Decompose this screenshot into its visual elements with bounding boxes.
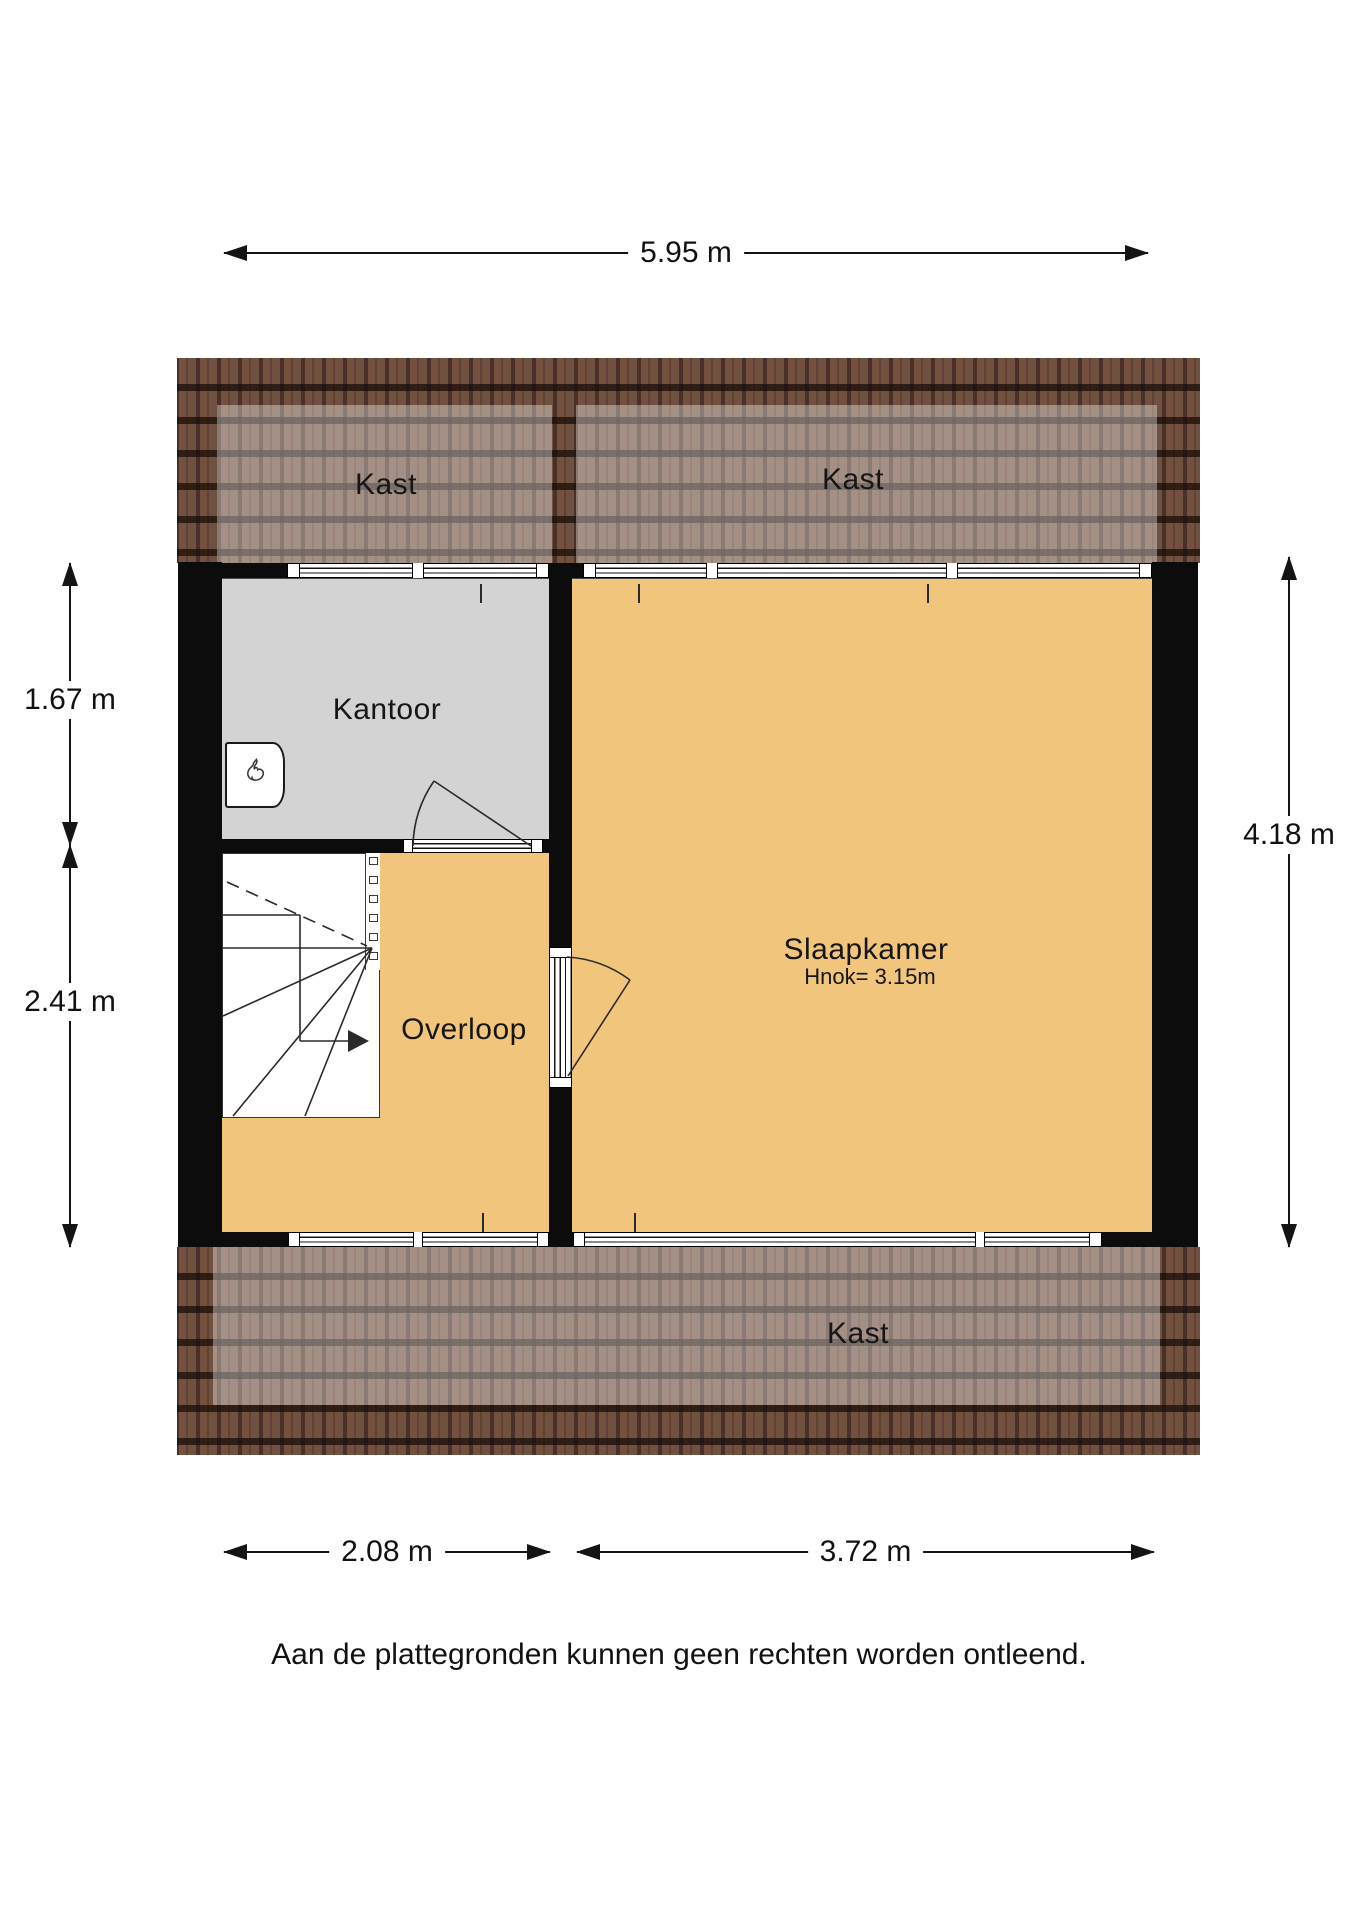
radiator (225, 742, 285, 808)
arrow-right-icon (1125, 245, 1149, 261)
wall-segment (178, 1232, 288, 1247)
dimension-label: 3.72 m (808, 1533, 924, 1571)
wall-segment (549, 1232, 573, 1247)
window-post (583, 563, 596, 578)
stairwell (222, 853, 380, 1118)
door-post (403, 839, 413, 853)
balustrade-spindle (369, 933, 378, 941)
window-divider (412, 563, 424, 578)
room-height-note: Hnok= 3.15m (804, 964, 935, 990)
window-post (536, 563, 549, 578)
window-divider (946, 563, 958, 578)
dimension-overloop-width: 2.08 m (224, 1544, 550, 1560)
door-post (531, 839, 543, 853)
arrow-left-icon (223, 245, 247, 261)
arrow-down-icon (1281, 1224, 1297, 1248)
wall-band-bottom (177, 1232, 1200, 1247)
window-post (288, 1232, 300, 1247)
dimension-label: 1.67 m (12, 681, 128, 719)
window-divider (975, 1232, 985, 1247)
dimension-slaapkamer-width: 3.72 m (577, 1544, 1154, 1560)
wall-segment (549, 563, 583, 578)
room-slaapkamer (572, 578, 1152, 1232)
window (718, 563, 946, 578)
balustrade-spindle (369, 895, 378, 903)
window (300, 563, 412, 578)
window-post (1089, 1232, 1102, 1247)
window (596, 563, 706, 578)
room-label-kast-bottom: Kast (827, 1317, 889, 1351)
room-label-kast-top-left: Kast (355, 468, 417, 502)
kast-area-bottom (213, 1247, 1160, 1405)
arrow-up-icon (62, 562, 78, 586)
dimension-label: 2.08 m (329, 1533, 445, 1571)
window-divider (413, 1232, 423, 1247)
arrow-left-icon (223, 1544, 247, 1560)
arrow-left-icon (576, 1544, 600, 1560)
exterior-wall-left (178, 562, 222, 1247)
balustrade-spindle (369, 857, 378, 865)
room-label-overloop: Overloop (401, 1013, 527, 1047)
wall-segment (178, 563, 287, 578)
exterior-wall-right (1152, 562, 1198, 1247)
stair-balustrade (365, 853, 380, 970)
roof-strip-bottom (177, 1247, 1200, 1455)
window-post (573, 1232, 585, 1247)
arrow-down-icon (62, 1224, 78, 1248)
interior-wall-slaapkamer (549, 578, 572, 947)
flame-icon (238, 756, 272, 794)
room-label-kast-top-right: Kast (822, 463, 884, 497)
wall-segment (1102, 1232, 1198, 1247)
arrow-up-icon (1281, 556, 1297, 580)
floor-plan: Kast Kast Kast Kantoor Slaapkamer Hnok= … (177, 358, 1200, 1455)
room-label-slaapkamer: Slaapkamer (783, 933, 948, 967)
dimension-line (69, 845, 71, 1247)
window (958, 563, 1139, 578)
disclaimer-text: Aan de plattegronden kunnen geen rechten… (0, 1638, 1358, 1672)
room-label-kantoor: Kantoor (333, 693, 442, 727)
door-opening-slaapkamer (549, 958, 572, 1077)
wall-band-top (177, 563, 1200, 578)
window-post (537, 1232, 549, 1247)
dimension-kantoor-depth: 1.67 m (62, 563, 78, 845)
window (423, 1232, 537, 1247)
window-divider (706, 563, 718, 578)
window-post (1139, 563, 1152, 578)
window (424, 563, 536, 578)
floor-plan-page: { "rooms": { "kast_top_left": { "label":… (0, 0, 1358, 1920)
interior-wall-kantoor (178, 839, 403, 853)
arrow-right-icon (527, 1544, 551, 1560)
wall-segment (1152, 563, 1198, 578)
dimension-label: 2.41 m (12, 983, 128, 1021)
interior-wall-slaapkamer (549, 1088, 572, 1232)
dimension-overall-width: 5.95 m (224, 245, 1148, 261)
window (585, 1232, 975, 1247)
door-post (549, 1077, 572, 1088)
dimension-line (1288, 557, 1290, 1247)
dimension-overloop-depth: 2.41 m (62, 845, 78, 1247)
arrow-right-icon (1131, 1544, 1155, 1560)
window (985, 1232, 1089, 1247)
dimension-label: 4.18 m (1231, 816, 1347, 854)
balustrade-spindle (369, 914, 378, 922)
arrow-down-icon (62, 822, 78, 846)
roof-strip-top (177, 358, 1200, 563)
window-post (287, 563, 300, 578)
window (300, 1232, 413, 1247)
dimension-interior-height: 4.18 m (1281, 557, 1297, 1247)
dimension-label: 5.95 m (628, 234, 744, 272)
arrow-up-icon (62, 844, 78, 868)
balustrade-spindle (369, 952, 378, 960)
door-opening-kantoor (413, 839, 531, 853)
door-post (549, 947, 572, 958)
balustrade-spindle (369, 876, 378, 884)
